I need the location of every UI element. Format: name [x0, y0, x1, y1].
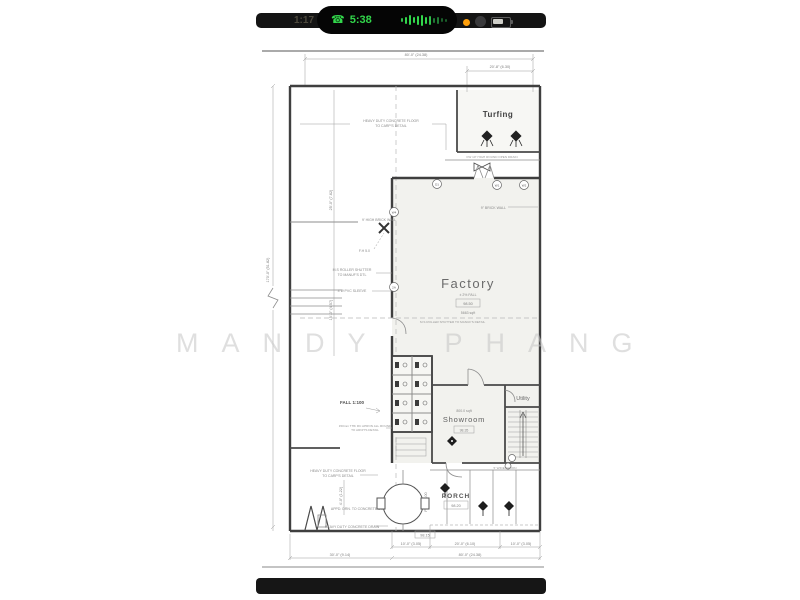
showroom-ffl: 98.35: [460, 429, 469, 433]
fh-note: F.H 5.0: [359, 249, 370, 253]
marker-2a: 2A: [392, 286, 396, 290]
fire-hose-icon: [379, 223, 389, 233]
dim-apron: 4'-0" (1.22): [339, 486, 343, 505]
fall-main-label: FALL 1:100: [340, 400, 364, 405]
marker-w1: W1: [495, 184, 500, 188]
dim-bottom-seg1: 30'-0" (9.14): [330, 553, 351, 557]
fall-arrow-icon: [366, 408, 380, 413]
left-dimension-line: [268, 84, 278, 531]
showroom-area: 800.0 sqft: [456, 409, 471, 413]
porch-ffl: 98.20: [451, 504, 461, 508]
toilet-block: [392, 356, 432, 432]
heavy-drain-note: HEAVY DUTY CONCRETE DRAIN: [325, 525, 380, 529]
ffl-box-value: 98.15: [420, 534, 430, 538]
factory-area: 5663 sqft: [461, 311, 475, 315]
dim-left-overall: 170'-0" (51.82): [266, 257, 270, 283]
dim-bottom-overall: 80'-0" (24.38): [459, 553, 482, 557]
heavy-duty-note-1b: TO CARP'S DETAIL: [375, 124, 407, 128]
dim-top-right: 20'-8" (6.30): [490, 65, 511, 69]
turf-drain-note: FW 10" HIGH ROUND OPEN DRAIN: [466, 155, 517, 159]
heavy-duty-note-2a: HEAVY DUTY CONCRETE FLOOR: [310, 469, 366, 473]
turfing-area: [457, 90, 540, 152]
marker-w2: W2: [522, 184, 527, 188]
showroom-label: Showroom: [443, 415, 485, 424]
shutter-note-a: M.S ROLLER SHUTTER: [333, 268, 372, 272]
factory-note: ± 2% FALL: [459, 293, 476, 297]
marker-w4: W4: [392, 211, 397, 215]
dim-left-lower: 15'-0" (4.57): [329, 299, 333, 320]
dim-top-overall: 80'-0" (24.38): [405, 53, 428, 57]
lower-left-annotations: [290, 428, 392, 530]
apron-note-b: TO ARCH'S DETAIL: [351, 428, 379, 432]
porch-label: PORCH: [442, 493, 470, 500]
shutter-note-b: TO MANUF'S DTL: [338, 273, 367, 277]
double-door-icon: [474, 165, 494, 178]
screenshot-canvas: 1:17 ☎ 5:38 80'-0" (24.38) 20'-8" (6.30: [0, 0, 800, 600]
bottom-letterbox-bar: [256, 578, 546, 594]
dim-left-upper: 25'-0" (7.62): [329, 189, 333, 210]
brick-wall-left-note: 9' HIGH BRICK WALL: [362, 218, 396, 222]
marker-d1: D1: [435, 183, 439, 187]
dim-bottom-seg2: 10'-0" (3.05): [401, 542, 422, 546]
factory-label: Factory: [441, 276, 495, 291]
utility-label: Utility: [516, 396, 530, 402]
dim-bottom-seg3: 20'-0" (6.10): [455, 542, 476, 546]
circular-tank: [377, 470, 429, 531]
pvc-note: 4"Ø PVC SLEEVE: [338, 289, 367, 293]
brick-wall-right-note: 9" BRICK WALL: [481, 206, 506, 210]
turfing-label: Turfing: [483, 110, 513, 119]
floor-plan-drawing: 80'-0" (24.38) 20'-8" (6.30) 170'-0" (51…: [0, 0, 800, 600]
factory-shutter-note: M.S ROLLER SHUTTER TO MANUF'S DETAIL: [420, 320, 486, 324]
factory-ffl: 98.50: [463, 302, 473, 306]
stair-apron-note: 5' WIDE APRON: [494, 466, 517, 470]
heavy-duty-note-2b: TO CARP'S DETAIL: [322, 474, 354, 478]
dim-bottom-seg4: 10'-0" (3.05): [511, 542, 532, 546]
heavy-duty-note-1a: HEAVY DUTY CONCRETE FLOOR: [363, 119, 419, 123]
